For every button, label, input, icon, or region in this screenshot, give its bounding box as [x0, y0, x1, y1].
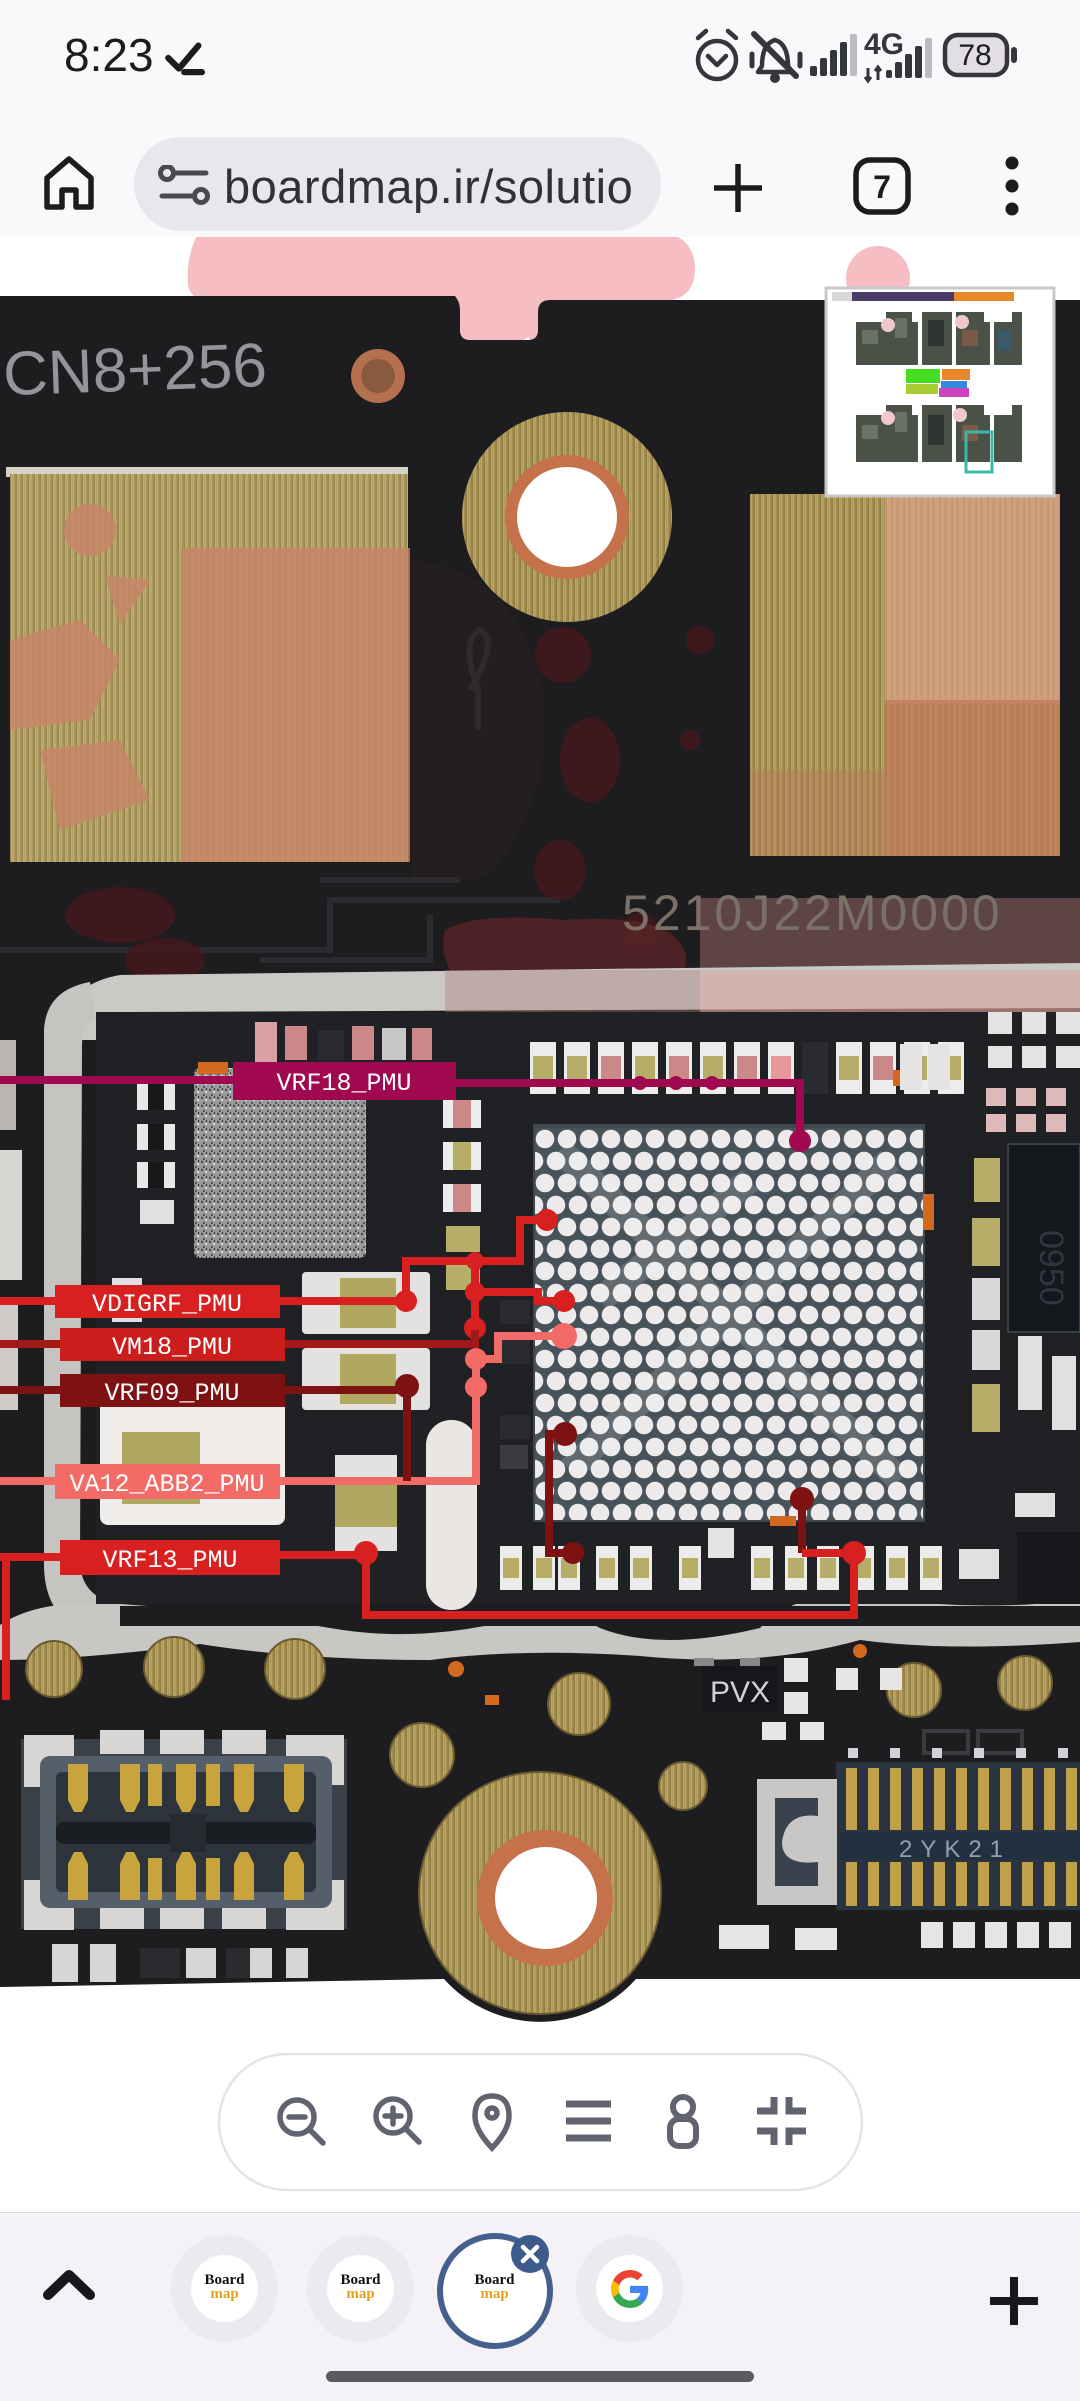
svg-text:VRF18_PMU: VRF18_PMU: [276, 1069, 411, 1098]
svg-text:0950: 0950: [1032, 1230, 1070, 1306]
svg-text:VDIGRF_PMU: VDIGRF_PMU: [92, 1290, 242, 1319]
svg-text:5210J22M0000: 5210J22M0000: [622, 885, 1003, 941]
svg-text:VM18_PMU: VM18_PMU: [112, 1333, 232, 1362]
svg-text:4G: 4G: [864, 28, 904, 61]
svg-text:7: 7: [873, 169, 891, 205]
svg-text:78: 78: [958, 39, 991, 72]
svg-text:2YK21: 2YK21: [899, 1836, 1011, 1863]
svg-text:VRF09_PMU: VRF09_PMU: [104, 1379, 239, 1408]
svg-text:PVX: PVX: [710, 1676, 770, 1709]
svg-text:VA12_ABB2_PMU: VA12_ABB2_PMU: [69, 1470, 264, 1499]
svg-text:CN8+256: CN8+256: [2, 331, 268, 409]
svg-text:VRF13_PMU: VRF13_PMU: [102, 1546, 237, 1575]
